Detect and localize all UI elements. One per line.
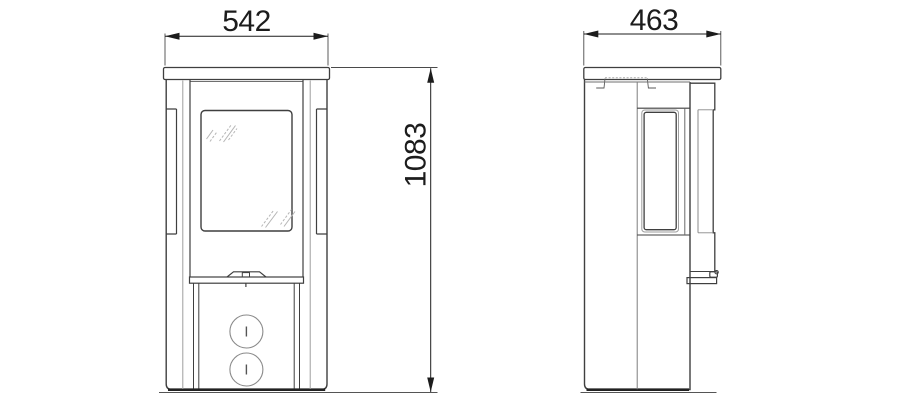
side-handle-shelf xyxy=(687,278,717,284)
dimension-depth: 463 xyxy=(584,4,721,66)
height-arrow-bottom xyxy=(427,378,434,393)
width-arrow-right xyxy=(314,33,329,40)
air-control-knobs xyxy=(230,315,263,386)
dimension-height: 1083 xyxy=(331,68,438,393)
width-extension-lines xyxy=(165,34,328,66)
front-top-plate xyxy=(164,68,330,80)
depth-dimension-label: 463 xyxy=(630,4,679,37)
front-right-vent-strip xyxy=(317,109,328,234)
depth-arrow-right xyxy=(706,31,721,38)
height-arrow-top xyxy=(427,68,434,83)
front-view xyxy=(159,68,438,393)
front-door-glass xyxy=(201,111,292,232)
side-window-inner xyxy=(644,112,676,229)
front-handle-ledge xyxy=(190,277,304,283)
side-view xyxy=(581,68,721,393)
front-base-right-inset xyxy=(294,283,299,388)
front-base-left-inset xyxy=(194,283,199,388)
drawing-svg: 542 463 1083 xyxy=(0,0,900,400)
width-dimension-label: 542 xyxy=(222,5,271,38)
side-door-profile xyxy=(690,83,715,271)
side-door-handle xyxy=(687,271,718,284)
front-left-vent-strip xyxy=(166,109,176,234)
side-window-outer xyxy=(642,110,679,232)
depth-arrow-left xyxy=(584,31,599,38)
height-dimension-label: 1083 xyxy=(400,123,433,188)
front-handle-latch xyxy=(242,273,249,277)
stove-technical-drawing: 542 463 1083 xyxy=(0,0,900,400)
side-top-plate xyxy=(584,68,721,80)
width-arrow-left xyxy=(165,33,180,40)
glass-reflection-marks xyxy=(207,125,296,228)
dimension-width: 542 xyxy=(165,5,328,66)
